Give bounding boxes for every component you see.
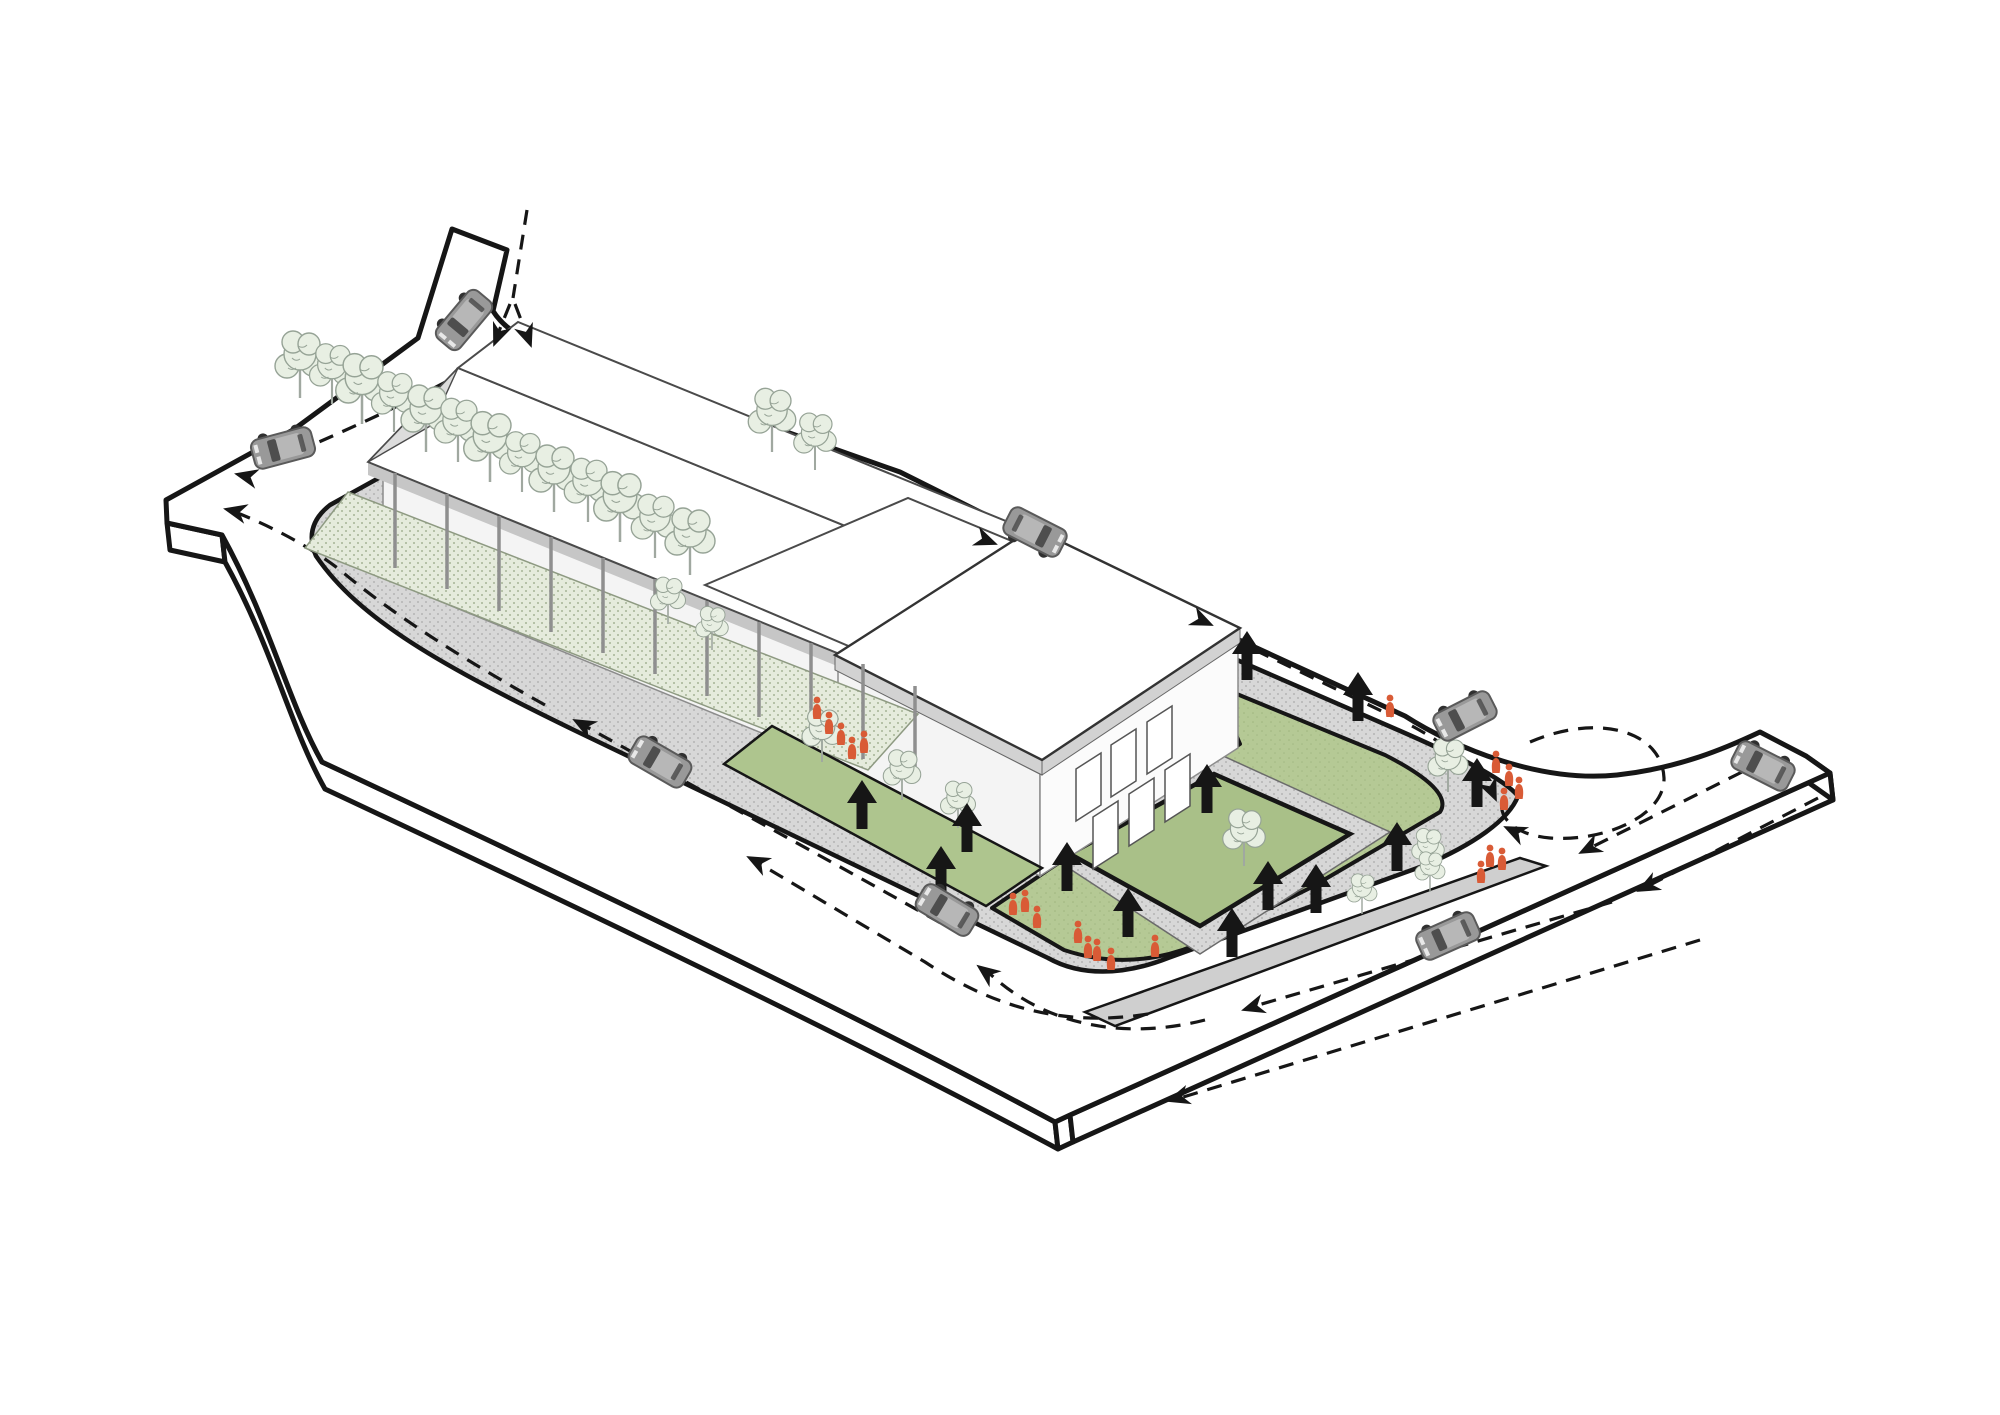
car-icon (1429, 685, 1500, 744)
site-diagram-canvas (0, 0, 2000, 1415)
person-icon (1500, 788, 1508, 810)
flow-branch-entry (513, 210, 527, 298)
person-icon (1492, 751, 1500, 773)
person-icon (1084, 936, 1092, 958)
person-icon (848, 737, 856, 759)
person-icon (1009, 893, 1017, 915)
person-icon (1505, 764, 1513, 786)
person-icon (1477, 861, 1485, 883)
person-icon (813, 697, 821, 719)
person-icon (1093, 939, 1101, 961)
person-icon (1486, 845, 1494, 867)
person-icon (1386, 695, 1394, 717)
person-icon (1033, 906, 1041, 928)
person-icon (825, 712, 833, 734)
site-diagram-page (0, 0, 2000, 1415)
person-icon (1074, 921, 1082, 943)
person-icon (1151, 935, 1159, 957)
person-icon (1515, 777, 1523, 799)
person-icon (860, 731, 868, 753)
person-icon (1498, 848, 1506, 870)
person-icon (1021, 890, 1029, 912)
person-icon (837, 723, 845, 745)
person-icon (1107, 948, 1115, 970)
